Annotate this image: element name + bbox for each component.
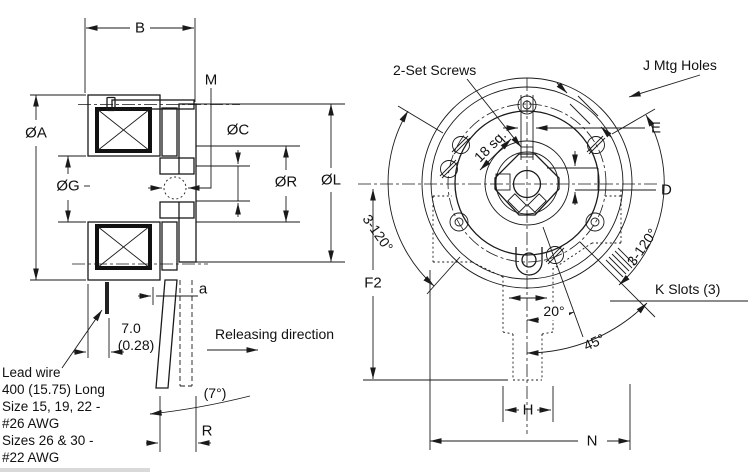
coil-top (97, 109, 150, 151)
armature-bottom (162, 222, 177, 270)
label-A: ØA (25, 125, 47, 142)
note-line-1: Lead wire (2, 365, 61, 380)
lead-wire-note: Lead wire 400 (15.75) Long Size 15, 19, … (2, 365, 105, 465)
label-F2: F2 (364, 275, 382, 292)
label-slot-angle-right: 3-120° (624, 225, 661, 268)
hub-step-lines (547, 168, 656, 190)
label-H: H (523, 402, 534, 419)
label-wire-offset-mm: 7.0 (121, 320, 141, 336)
dim-hub-square: 18 sq. (471, 127, 511, 170)
releasing-direction: Releasing direction (207, 326, 334, 350)
label-slot-angle-left: 3-120° (360, 211, 397, 254)
note-line-5: Sizes 26 & 30 - (2, 433, 94, 448)
label-angle-45: 45° (581, 330, 607, 353)
label-mtg-holes: J Mtg Holes (643, 57, 717, 73)
bottom-edge-artifact (0, 468, 150, 472)
lead-wire (105, 282, 109, 314)
label-G: ØG (56, 178, 79, 195)
dim-angle-20: 20° (527, 227, 583, 337)
dim-B: B (85, 18, 195, 102)
label-M: M (205, 72, 218, 89)
label-L: ØL (321, 172, 341, 189)
dim-H: H (503, 386, 553, 422)
lead-wire-leader (62, 310, 102, 368)
dim-swing-angle: (7°) (150, 385, 250, 414)
dim-wire-offset: 7.0 (0.28) (73, 284, 154, 358)
label-swing-angle: (7°) (204, 385, 227, 401)
note-line-4: #26 AWG (2, 416, 59, 431)
dim-M: M (148, 72, 217, 189)
coil-bottom (97, 226, 150, 268)
label-k-slots: K Slots (3) (655, 281, 720, 297)
side-section-view (72, 95, 240, 388)
dim-R: R (146, 396, 213, 452)
dim-G: ØG (52, 156, 90, 222)
brake-dimensional-drawing: B ØA ØG M (0, 0, 750, 472)
dim-N: N (430, 270, 630, 450)
dim-a: a (138, 281, 208, 306)
label-D: D (661, 182, 672, 199)
label-wire-offset-in: (0.28) (118, 337, 155, 353)
label-releasing-direction: Releasing direction (215, 326, 334, 342)
label-angle-20: 20° (543, 303, 564, 319)
label-N: N (587, 433, 598, 450)
label-R: R (202, 423, 213, 440)
note-line-6: #22 AWG (2, 450, 59, 465)
armature-top (162, 108, 177, 156)
label-C: ØC (227, 122, 250, 139)
note-line-2: 400 (15.75) Long (2, 382, 105, 397)
label-a: a (199, 281, 208, 298)
dim-L: ØL (315, 104, 347, 262)
dim-D: D (575, 151, 672, 205)
label-set-screws: 2-Set Screws (393, 62, 476, 78)
screws (440, 136, 605, 264)
drawing-canvas: B ØA ØG M (0, 0, 750, 472)
label-R-dia: ØR (275, 174, 298, 191)
label-B: B (135, 20, 145, 37)
dim-C: ØC (227, 122, 250, 218)
dim-R-dia: ØR (270, 146, 302, 222)
key-pads (496, 174, 546, 212)
note-line-3: Size 15, 19, 22 - (2, 399, 100, 414)
dim-slot-angle-left: 3-120° (360, 106, 460, 294)
callout-mtg-holes: J Mtg Holes (629, 57, 717, 97)
side-view-dimensions: B ØA ØG M (2, 18, 347, 465)
